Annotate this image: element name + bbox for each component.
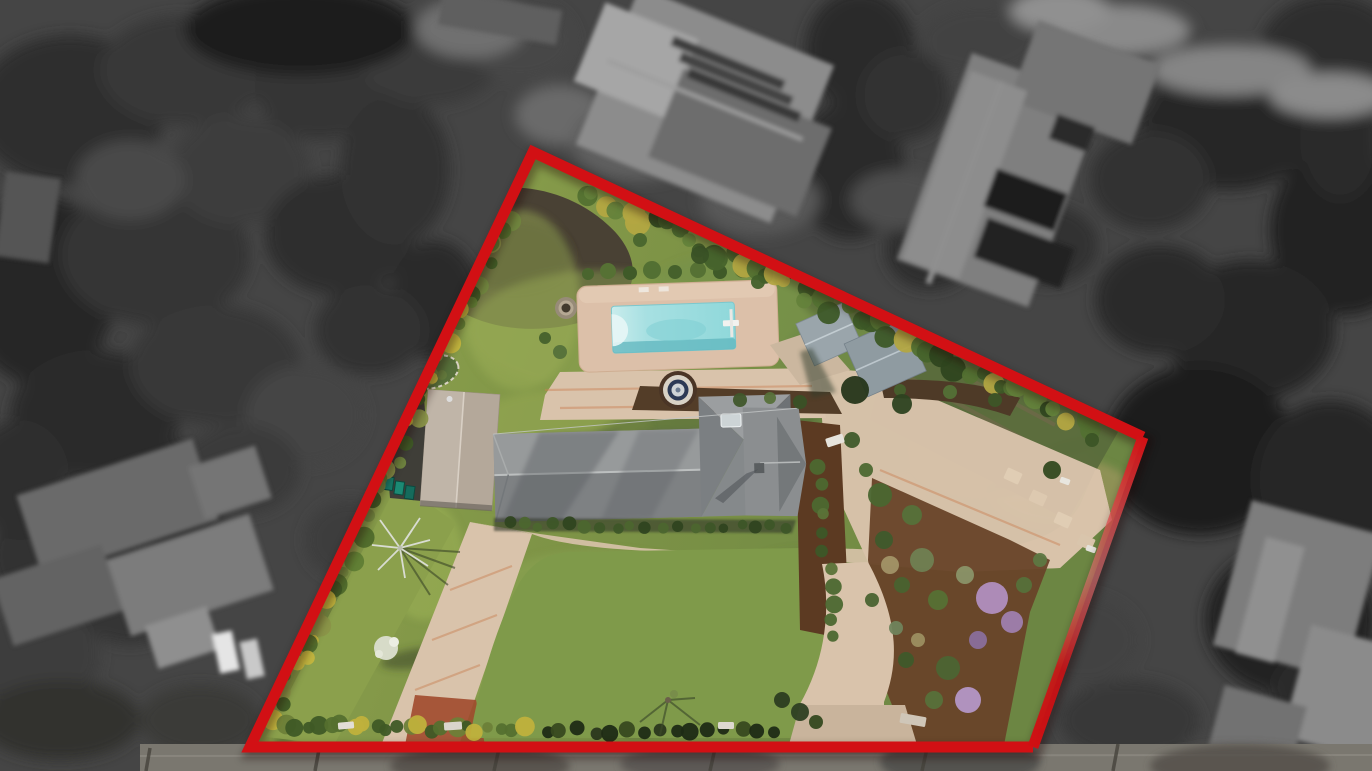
hedge-bush — [379, 724, 391, 736]
hedge-bush — [749, 520, 762, 533]
yard-marker — [338, 721, 355, 729]
hedge-bush — [505, 516, 517, 528]
hedge-bush — [519, 517, 531, 529]
hedge-bush — [601, 725, 618, 742]
fountain-center — [676, 388, 681, 393]
pool-lounger — [659, 286, 669, 291]
tree-canopy-blob — [1090, 130, 1210, 230]
hedge-bush — [749, 724, 764, 739]
shrub — [1033, 553, 1047, 567]
hedge-bush — [816, 478, 829, 491]
hedge-bush — [816, 527, 828, 539]
shrub — [925, 691, 943, 709]
hedge-bush — [619, 721, 635, 737]
shrub — [976, 582, 1008, 614]
topiary-bush — [600, 263, 616, 279]
hedge-bush — [700, 722, 715, 737]
shrub — [751, 275, 765, 289]
shrub — [841, 376, 869, 404]
hedge-bush — [681, 723, 699, 741]
shrub — [898, 652, 914, 668]
shrub — [955, 687, 981, 713]
hedge-bush — [768, 726, 780, 738]
topiary-bush — [582, 268, 594, 280]
hedge-bush — [515, 717, 535, 737]
shrub — [928, 590, 948, 610]
tree-canopy-blob — [340, 95, 450, 245]
shrub — [733, 393, 747, 407]
hedge-bush — [533, 523, 542, 532]
hedge-bush — [781, 523, 792, 534]
tree-canopy-blob — [315, 285, 425, 375]
hedge-bush — [815, 545, 828, 558]
shrub — [1016, 577, 1032, 593]
shrub — [892, 394, 912, 414]
shrub — [875, 531, 893, 549]
hedge-bush — [563, 516, 577, 530]
pool-lounger — [639, 287, 649, 292]
hedge-bush — [577, 520, 590, 533]
hedge-bush — [594, 522, 605, 533]
hedge-bush — [825, 578, 841, 594]
shrub — [809, 715, 823, 729]
hedge-bush — [408, 715, 427, 734]
hedge-bush — [482, 722, 493, 733]
shrub — [969, 631, 987, 649]
blossom-highlight — [389, 637, 399, 647]
topiary-bush — [668, 265, 682, 279]
hedge-bush — [285, 719, 303, 737]
shrub — [774, 692, 790, 708]
lawn-tree-canopy — [670, 690, 678, 698]
hedge-bush — [810, 459, 826, 475]
hedge-bush — [390, 720, 403, 733]
shrub — [1043, 461, 1061, 479]
hedge-bush — [736, 721, 752, 737]
hedge-bush — [638, 726, 651, 739]
hedge-bush — [825, 596, 843, 614]
shrub — [910, 548, 934, 572]
right-wing-ridge — [760, 462, 800, 463]
aerial-property-photograph — [0, 0, 1372, 771]
hedge-bush — [624, 521, 634, 531]
blossom-highlight — [375, 650, 383, 658]
shrub — [956, 566, 974, 584]
hedge-bush — [658, 523, 669, 534]
hedge-bush — [551, 723, 566, 738]
hedge-bush — [738, 520, 748, 530]
shrub — [1001, 611, 1023, 633]
hedge-bush — [824, 613, 837, 626]
hedge-bush — [827, 630, 838, 641]
topiary-bush — [623, 266, 637, 280]
chimney — [754, 463, 764, 473]
hedge-bush — [570, 720, 585, 735]
shrub — [911, 633, 925, 647]
fire-pit — [555, 297, 577, 319]
fire-pit-center — [562, 304, 571, 313]
detached-garage — [420, 389, 500, 511]
fountain — [659, 371, 697, 409]
shrub — [894, 384, 906, 396]
yard-marker — [718, 722, 734, 729]
lawn-tree-trunk — [665, 697, 671, 703]
hedge-bush — [638, 521, 650, 533]
hedge-bush — [825, 563, 837, 575]
shrub — [764, 392, 776, 404]
trash-bin — [394, 481, 405, 495]
aerial-photo-stage — [0, 0, 1372, 771]
shrub — [1085, 433, 1099, 447]
shrub — [902, 505, 922, 525]
shrub — [988, 393, 1002, 407]
trash-bin — [404, 485, 415, 499]
hedge-bush — [465, 724, 482, 741]
shrub — [865, 593, 879, 607]
shrub — [793, 395, 807, 409]
skylight — [721, 414, 741, 428]
hedge-bush — [764, 519, 775, 530]
shrub — [844, 432, 860, 448]
hedge-bush — [547, 517, 559, 529]
shrub — [633, 233, 647, 247]
shrub — [539, 332, 551, 344]
tree-trunk — [398, 546, 403, 551]
tree-canopy-blob — [75, 140, 185, 220]
shrub — [881, 556, 899, 574]
hedge-bush — [705, 522, 716, 533]
hedge-bush — [354, 716, 370, 732]
tree-canopy-blob — [1095, 245, 1225, 355]
topiary-bush — [643, 261, 661, 279]
shrub — [691, 246, 709, 264]
topiary-bush — [690, 262, 706, 278]
shrub — [889, 621, 903, 635]
hedge-bush — [613, 523, 624, 534]
hedge-bush — [796, 293, 812, 309]
shrub — [553, 345, 567, 359]
yard-marker — [444, 721, 463, 730]
shrub — [936, 656, 960, 680]
pool-area — [577, 280, 780, 373]
shrub — [868, 483, 892, 507]
hedge-bush — [719, 523, 729, 533]
shrub — [859, 463, 873, 477]
shrub — [791, 703, 809, 721]
hedge-bush — [672, 521, 683, 532]
shrub — [943, 385, 957, 399]
shrub — [894, 577, 910, 593]
hedge-bush — [817, 508, 828, 519]
hedge-bush — [691, 523, 701, 533]
